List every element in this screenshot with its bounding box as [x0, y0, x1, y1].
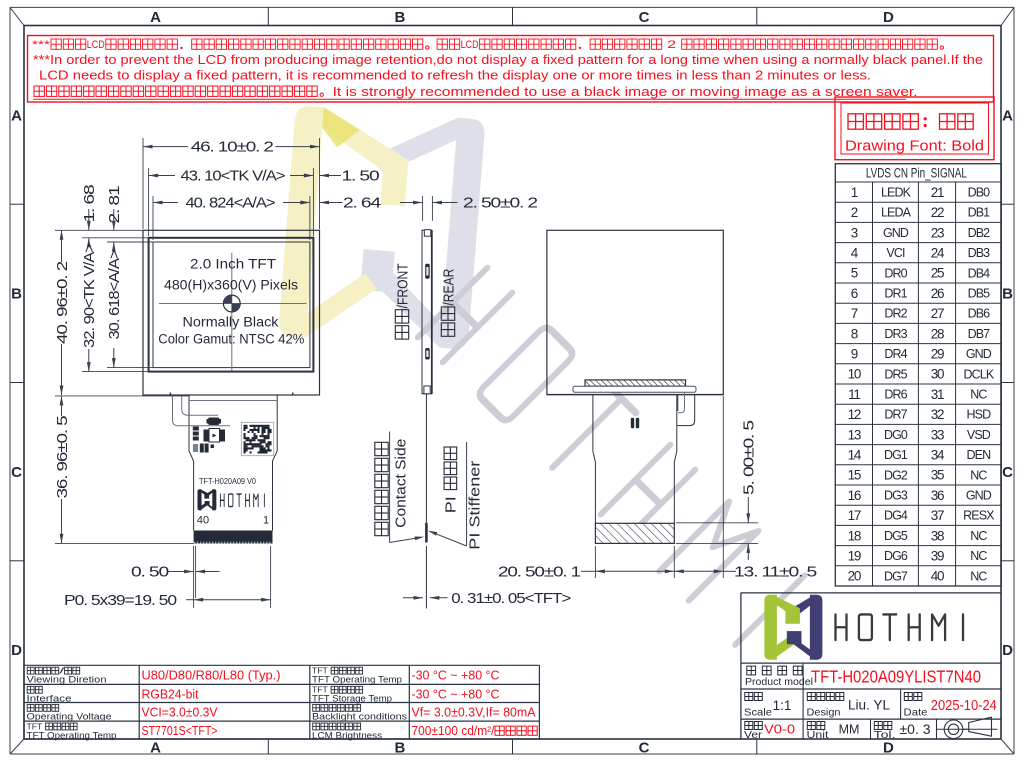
- svg-text:36. 96±0. 5: 36. 96±0. 5: [54, 416, 71, 499]
- svg-text:Liu. YL: Liu. YL: [848, 697, 890, 712]
- svg-text:ST7701S<TFT>: ST7701S<TFT>: [142, 724, 218, 738]
- svg-text:20. 50±0. 1: 20. 50±0. 1: [498, 563, 581, 580]
- svg-text:30: 30: [931, 367, 944, 382]
- svg-text:33: 33: [931, 427, 944, 442]
- svg-text:It is strongly recommended to: It is strongly recommended to use a blac…: [333, 84, 918, 99]
- svg-text:5: 5: [851, 266, 858, 281]
- svg-text:Normally Black: Normally Black: [183, 314, 279, 329]
- svg-text:DG5: DG5: [884, 529, 908, 543]
- svg-text:DR1: DR1: [884, 287, 907, 301]
- svg-text:HSD: HSD: [967, 408, 992, 422]
- svg-text:2.0 Inch TFT: 2.0 Inch TFT: [190, 256, 276, 271]
- svg-text:DG0: DG0: [884, 428, 908, 442]
- svg-text:RESX: RESX: [963, 509, 995, 523]
- svg-text:NC: NC: [970, 529, 987, 543]
- svg-text:D: D: [11, 642, 22, 659]
- svg-text:MM: MM: [839, 722, 860, 736]
- svg-text:19: 19: [848, 549, 861, 564]
- svg-text:TFT Operating Temp: TFT Operating Temp: [27, 730, 117, 741]
- svg-text:LCD needs to display a fixed p: LCD needs to display a fixed pattern, it…: [39, 69, 871, 83]
- svg-text:31: 31: [931, 387, 944, 402]
- svg-text:13. 11±0. 5: 13. 11±0. 5: [734, 563, 817, 580]
- svg-text:V0-0: V0-0: [764, 722, 795, 737]
- svg-text:PI Stiffener: PI Stiffener: [467, 461, 484, 550]
- svg-text:18: 18: [848, 528, 861, 543]
- svg-text:32. 90<TK V/A>: 32. 90<TK V/A>: [81, 243, 98, 348]
- svg-text:480(H)x360(V) Pixels: 480(H)x360(V) Pixels: [164, 277, 298, 292]
- svg-text:14: 14: [848, 448, 862, 463]
- svg-text:0. 50: 0. 50: [131, 564, 169, 581]
- svg-text:1. 50: 1. 50: [342, 168, 380, 185]
- svg-text:±0. 3: ±0. 3: [899, 721, 930, 737]
- svg-text:DEN: DEN: [967, 448, 992, 462]
- svg-text:3: 3: [851, 225, 858, 240]
- svg-text:10: 10: [848, 367, 861, 382]
- svg-text:27: 27: [931, 306, 944, 321]
- svg-text:B: B: [1002, 286, 1013, 303]
- svg-text:***: ***: [32, 39, 51, 51]
- svg-text:29: 29: [931, 347, 944, 362]
- svg-text:1: 1: [263, 514, 269, 526]
- svg-text:DR2: DR2: [884, 307, 907, 321]
- svg-text:C: C: [639, 739, 650, 756]
- svg-text:-30 °C ~ +80 °C: -30 °C ~ +80 °C: [412, 687, 500, 701]
- svg-text:7: 7: [851, 306, 858, 321]
- svg-text:/FRONT: /FRONT: [394, 263, 411, 308]
- svg-text:DB3: DB3: [968, 246, 991, 260]
- svg-text:DCLK: DCLK: [964, 367, 995, 381]
- svg-text:DR7: DR7: [884, 408, 907, 422]
- svg-text:Scale: Scale: [744, 708, 772, 719]
- svg-text:C: C: [11, 464, 22, 481]
- svg-text:NC: NC: [970, 468, 987, 482]
- svg-text:DB7: DB7: [968, 327, 991, 341]
- svg-text:LCD: LCD: [87, 39, 105, 51]
- svg-text:DB6: DB6: [968, 307, 991, 321]
- svg-text:C: C: [639, 9, 650, 26]
- svg-text:1:1: 1:1: [773, 698, 792, 713]
- svg-text:NC: NC: [970, 569, 987, 583]
- svg-text:6: 6: [851, 286, 858, 301]
- svg-text:DR0: DR0: [884, 266, 907, 280]
- svg-text:16: 16: [848, 488, 861, 503]
- svg-text:VCI=3.0±0.3V: VCI=3.0±0.3V: [142, 706, 219, 720]
- svg-text:20: 20: [848, 569, 861, 584]
- svg-text:2: 2: [851, 205, 858, 220]
- svg-text:A: A: [11, 107, 22, 124]
- svg-text:TFT-H020A09 V0: TFT-H020A09 V0: [199, 476, 256, 486]
- svg-text:39: 39: [931, 549, 944, 564]
- svg-text:22: 22: [931, 205, 944, 220]
- svg-text:12: 12: [848, 407, 861, 422]
- svg-text:46. 10±0. 2: 46. 10±0. 2: [191, 138, 274, 155]
- svg-text:DG7: DG7: [884, 569, 908, 583]
- svg-text:DG1: DG1: [884, 448, 908, 462]
- svg-text:D: D: [1002, 642, 1013, 659]
- svg-text:DG6: DG6: [884, 549, 908, 563]
- svg-text:Color Gamut: NTSC 42%: Color Gamut: NTSC 42%: [158, 332, 304, 347]
- svg-text:2. 50±0. 2: 2. 50±0. 2: [463, 195, 538, 212]
- svg-text:DG4: DG4: [884, 509, 908, 523]
- svg-text:17: 17: [848, 508, 861, 523]
- svg-text:-30 °C ~ +80 °C: -30 °C ~ +80 °C: [412, 668, 500, 682]
- svg-text:Interface: Interface: [27, 694, 72, 705]
- svg-text:28: 28: [931, 326, 944, 341]
- svg-text:2. 64: 2. 64: [343, 195, 381, 212]
- svg-text:DB0: DB0: [968, 186, 991, 200]
- svg-text:38: 38: [931, 528, 944, 543]
- svg-text:40: 40: [931, 569, 944, 584]
- svg-text:24: 24: [931, 246, 945, 261]
- svg-text:36: 36: [931, 488, 944, 503]
- svg-text:D: D: [883, 9, 894, 26]
- svg-text:25: 25: [931, 266, 944, 281]
- svg-text:LEDK: LEDK: [881, 186, 912, 200]
- svg-text:21: 21: [931, 185, 944, 200]
- svg-text:GND: GND: [966, 489, 992, 503]
- svg-text:A: A: [150, 9, 161, 26]
- svg-text:43. 10<TK V/A>: 43. 10<TK V/A>: [181, 168, 286, 185]
- svg-text:Unit: Unit: [807, 730, 829, 741]
- svg-text:37: 37: [931, 508, 944, 523]
- svg-text:40. 96±0. 2: 40. 96±0. 2: [54, 261, 71, 344]
- svg-text:B: B: [394, 9, 405, 26]
- svg-text:Date: Date: [904, 708, 928, 719]
- svg-text:13: 13: [848, 427, 861, 442]
- svg-text:DB5: DB5: [968, 287, 991, 301]
- svg-text:32: 32: [931, 407, 944, 422]
- svg-text:30. 618<A/A>: 30. 618<A/A>: [106, 249, 123, 339]
- svg-text:Vf= 3.0±0.3V,If= 80mA: Vf= 3.0±0.3V,If= 80mA: [412, 706, 537, 720]
- svg-text:26: 26: [931, 286, 944, 301]
- svg-text:2025-10-24: 2025-10-24: [931, 698, 997, 714]
- svg-text:40. 824<A/A>: 40. 824<A/A>: [186, 195, 276, 212]
- svg-text:9: 9: [851, 347, 858, 362]
- svg-text:A: A: [150, 739, 161, 756]
- svg-text:***In order to prevent the LCD: ***In order to prevent the LCD from prod…: [33, 53, 983, 67]
- svg-text:Viewing Diretion: Viewing Diretion: [27, 675, 107, 686]
- svg-text:DR5: DR5: [884, 367, 907, 381]
- svg-text:8: 8: [851, 326, 858, 341]
- svg-text:NC: NC: [970, 388, 987, 402]
- svg-text:35: 35: [931, 468, 944, 483]
- svg-text:LVDS CN Pin_SIGNAL: LVDS CN Pin_SIGNAL: [866, 165, 967, 180]
- svg-text:DB2: DB2: [968, 226, 991, 240]
- svg-text:15: 15: [848, 468, 861, 483]
- svg-text:GND: GND: [966, 347, 992, 361]
- svg-text:U80/D80/R80/L80 (Typ.): U80/D80/R80/L80 (Typ.): [142, 668, 281, 682]
- svg-text:0. 31±0. 05<TFT>: 0. 31±0. 05<TFT>: [451, 590, 571, 607]
- svg-text:VSD: VSD: [967, 428, 991, 442]
- svg-text:TFT-H020A09YLIST7N40: TFT-H020A09YLIST7N40: [811, 667, 981, 687]
- svg-text:NC: NC: [970, 549, 987, 563]
- svg-text:LCM Brightness: LCM Brightness: [312, 730, 382, 741]
- svg-text:2. 81: 2. 81: [106, 186, 123, 224]
- svg-text:B: B: [394, 739, 405, 756]
- svg-text:5. 00±0. 5: 5. 00±0. 5: [740, 420, 757, 495]
- svg-text:Ver: Ver: [744, 730, 763, 741]
- svg-text:34: 34: [931, 448, 945, 463]
- svg-text:P0. 5x39=19. 50: P0. 5x39=19. 50: [64, 592, 177, 609]
- svg-text:11: 11: [848, 387, 860, 402]
- svg-text:RGB24-bit: RGB24-bit: [142, 687, 200, 701]
- svg-text:B: B: [11, 286, 22, 303]
- svg-text:C: C: [1002, 464, 1013, 481]
- svg-text:LEDA: LEDA: [881, 206, 912, 220]
- svg-text:Drawing Font: Bold: Drawing Font: Bold: [845, 139, 984, 155]
- svg-text:Design: Design: [807, 708, 841, 719]
- svg-text:2: 2: [663, 39, 681, 51]
- svg-text:/REAR: /REAR: [440, 268, 457, 305]
- svg-text:GND: GND: [883, 226, 909, 240]
- svg-text:23: 23: [931, 225, 944, 240]
- svg-text:DB4: DB4: [968, 266, 991, 280]
- svg-text:PI: PI: [443, 491, 460, 513]
- svg-text:1. 68: 1. 68: [81, 185, 98, 223]
- svg-text:1: 1: [851, 185, 858, 200]
- svg-text:Tol.: Tol.: [874, 730, 896, 741]
- svg-text:LCD: LCD: [461, 39, 479, 51]
- svg-text:DG2: DG2: [884, 468, 908, 482]
- svg-text:A: A: [1002, 107, 1013, 124]
- svg-text:Product model: Product model: [745, 676, 813, 688]
- svg-text:Backlight conditions: Backlight conditions: [312, 712, 407, 723]
- svg-text:D: D: [883, 739, 894, 756]
- svg-text:40: 40: [197, 514, 209, 526]
- svg-text:DR6: DR6: [884, 388, 907, 402]
- svg-text:VCI: VCI: [886, 246, 905, 260]
- svg-text:Contact Side: Contact Side: [392, 439, 409, 528]
- svg-text:TFT Storage Temp: TFT Storage Temp: [312, 694, 392, 705]
- svg-text:DR3: DR3: [884, 327, 907, 341]
- svg-text:DR4: DR4: [884, 347, 907, 361]
- svg-text:700±100 cd/m²/: 700±100 cd/m²/: [412, 724, 495, 738]
- svg-text:DG3: DG3: [884, 489, 908, 503]
- svg-text:DB1: DB1: [968, 206, 991, 220]
